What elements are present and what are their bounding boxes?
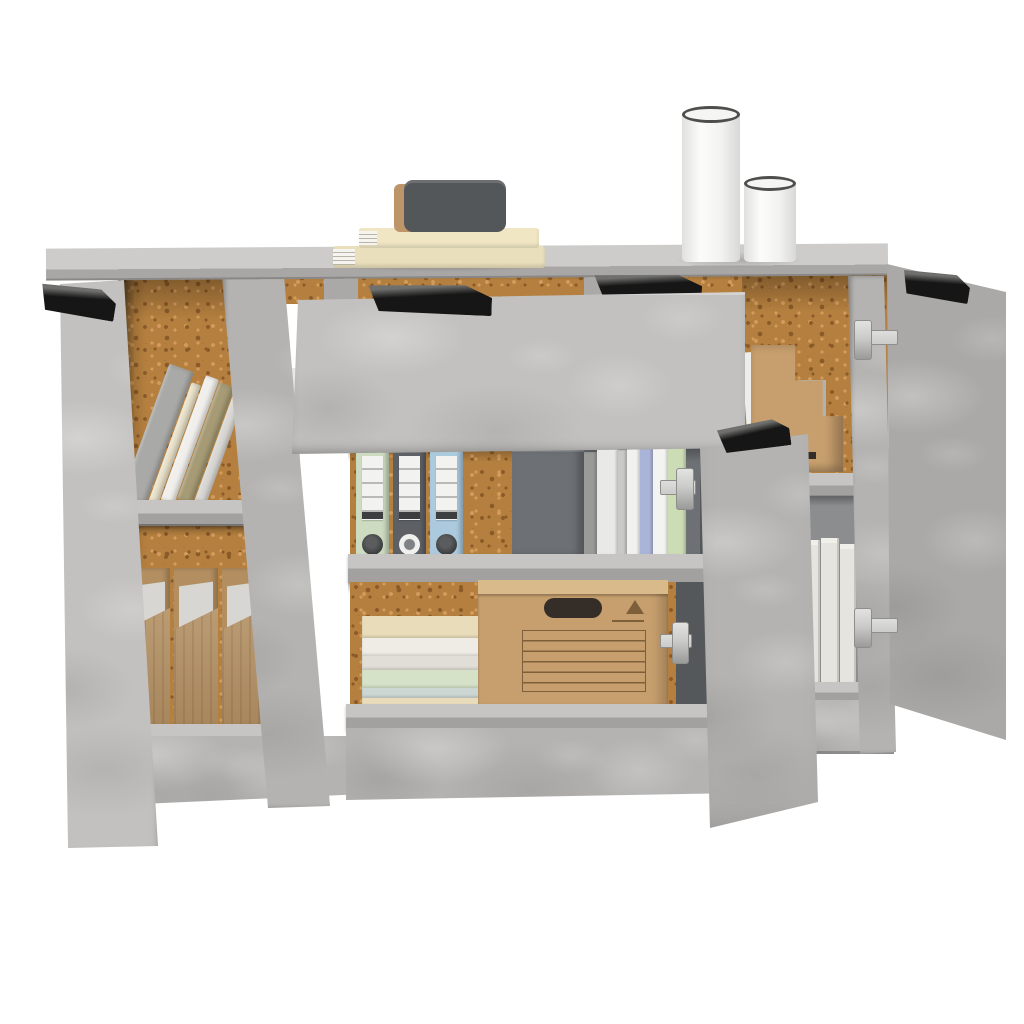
binder-label <box>399 456 420 520</box>
magazine-file <box>174 568 218 744</box>
paper-stack <box>362 616 482 712</box>
binder-label <box>362 456 383 520</box>
box-print-triangle <box>626 600 644 614</box>
book-spine <box>627 442 640 556</box>
binder <box>356 446 389 560</box>
middle-base-panel <box>346 728 754 800</box>
binder-label-strip <box>436 512 457 519</box>
binder <box>393 446 426 560</box>
decor-dark-case <box>404 180 506 232</box>
cardboard-box <box>478 580 668 712</box>
binder-ring <box>399 534 420 555</box>
book-spine <box>597 444 618 556</box>
box-handle-slot <box>544 598 602 618</box>
middle-door-open <box>698 430 820 830</box>
book-spine <box>640 448 653 556</box>
paper-stack-layer <box>362 656 482 670</box>
middle-door-hinge-top <box>676 468 694 510</box>
paper-stack-layer <box>362 638 482 656</box>
binder-ring <box>362 534 383 555</box>
tall-canister <box>682 112 740 262</box>
right-door-hinge-top <box>854 320 872 360</box>
middle-shelf <box>348 554 752 582</box>
paper-stack-layer <box>362 688 482 698</box>
short-canister-lid <box>744 176 796 191</box>
right-door-open <box>884 262 1010 742</box>
product-photo-stage <box>0 0 1024 1024</box>
right-door-hinge-bottom <box>854 608 872 648</box>
tall-canister-lid <box>682 106 740 123</box>
dark-storage-box <box>512 448 584 556</box>
decor-book-bottom <box>333 246 545 268</box>
middle-floor <box>346 704 754 730</box>
binder-label-strip <box>362 512 383 519</box>
middle-door-hinge-bottom <box>672 622 689 664</box>
binder-ring <box>436 534 457 555</box>
decor-book-bottom-pages <box>333 249 355 265</box>
book-spine <box>584 452 597 556</box>
box-print-line <box>612 620 644 622</box>
white-book <box>821 538 839 688</box>
binder-label-strip <box>399 512 420 519</box>
book-spine <box>618 450 627 556</box>
paper-stack-layer <box>362 616 482 638</box>
decor-book-top-pages <box>359 231 377 245</box>
leaning-books-group <box>120 352 232 504</box>
binder-label <box>436 456 457 520</box>
open-drawer-front <box>292 292 746 454</box>
short-canister <box>744 182 796 262</box>
paper-stack-layer <box>362 670 482 688</box>
book-spine <box>653 446 668 556</box>
upright-books-group <box>512 438 688 556</box>
binders-group <box>356 444 466 560</box>
box-print-label <box>522 630 646 692</box>
binder <box>430 446 463 560</box>
